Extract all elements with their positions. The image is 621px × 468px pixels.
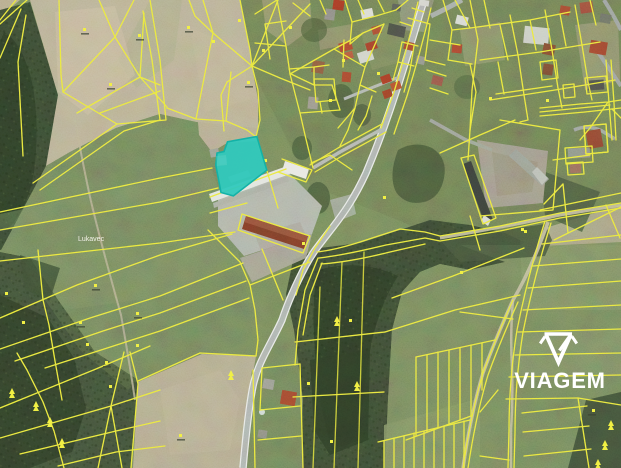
svg-text:VIAGEM: VIAGEM — [514, 368, 606, 393]
svg-text:Lukavec: Lukavec — [78, 236, 105, 243]
